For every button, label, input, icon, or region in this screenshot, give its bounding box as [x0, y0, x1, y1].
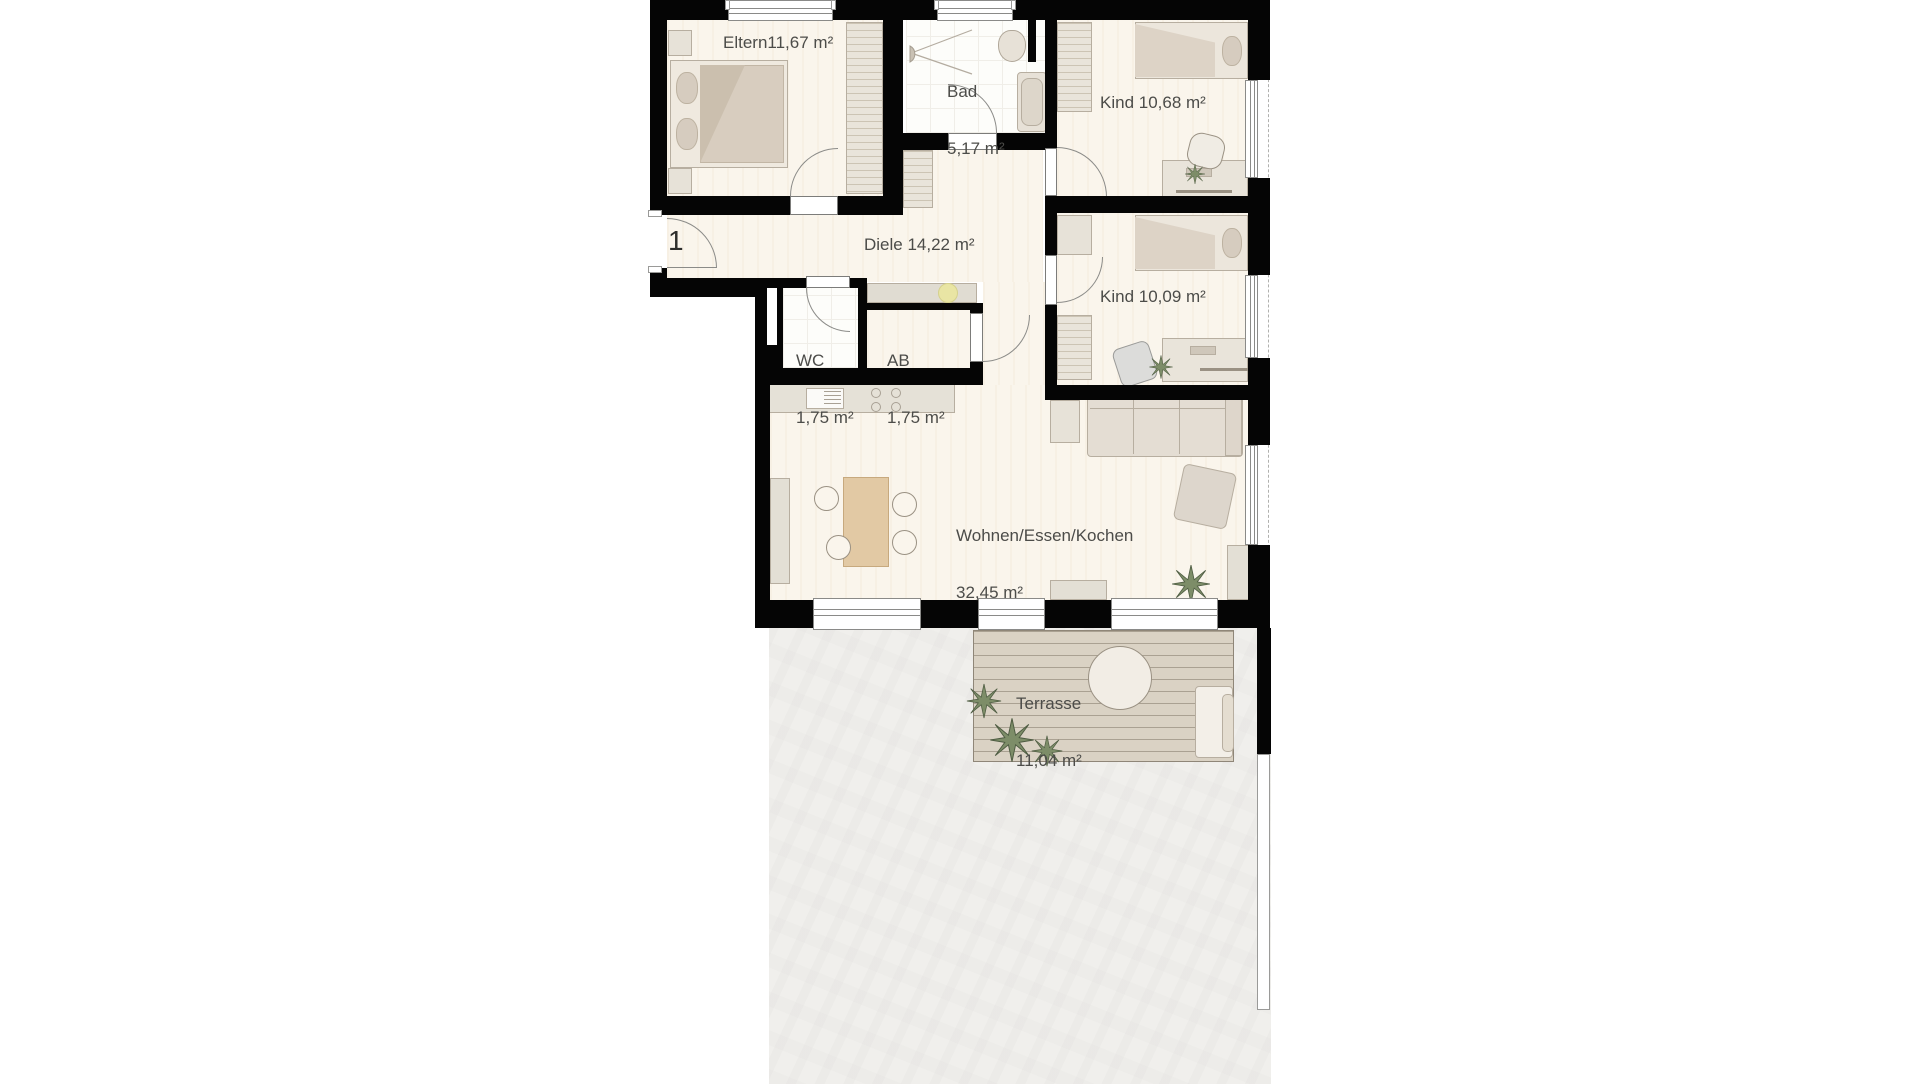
- window-jamb: [934, 0, 939, 10]
- window-kind-top: [1245, 80, 1258, 178]
- boundary-dashed-line: [1268, 24, 1269, 628]
- window-wohnen-bottom-left: [813, 598, 921, 630]
- plant-icon: [1184, 163, 1206, 185]
- wall-wohnen-left: [755, 297, 770, 628]
- room-area: 1,75 m²: [887, 408, 945, 427]
- desk-icon: [1162, 338, 1248, 382]
- wall-wc-block-bottom: [755, 368, 983, 385]
- sofa-seat-divider: [1179, 396, 1180, 454]
- monitor-icon: [1176, 190, 1232, 193]
- wall-terrace-right: [1257, 628, 1271, 754]
- window-kind-mid: [1245, 275, 1258, 358]
- room-name: WC: [796, 351, 854, 370]
- room-label-bad: Bad 5,17 m²: [947, 44, 1005, 196]
- unit-number-label: 1: [668, 226, 684, 256]
- room-name: Terrasse: [1016, 694, 1082, 713]
- wall-ab-top: [867, 303, 977, 310]
- wall-right: [1248, 358, 1270, 445]
- nightstand-icon: [668, 168, 692, 194]
- window-jamb: [1011, 0, 1016, 10]
- wardrobe-icon: [846, 22, 883, 194]
- pillow-icon: [1222, 36, 1242, 66]
- wall-right: [1248, 178, 1270, 275]
- floor-plan: Eltern11,67 m² Bad 5,17 m² Kind 10,68 m²…: [0, 0, 1920, 1084]
- room-label-wc: WC 1,75 m²: [796, 313, 854, 465]
- wall-kind-divider: [1057, 196, 1270, 213]
- dining-table-icon: [843, 477, 889, 567]
- dining-chair-icon: [892, 492, 917, 517]
- door-leaf-ab: [970, 313, 983, 362]
- door-leaf-kind-mid: [1045, 255, 1057, 305]
- sofa-armrest: [1225, 395, 1242, 456]
- plant-icon: [965, 682, 1003, 720]
- keyboard-icon: [1190, 346, 1216, 355]
- window-jamb: [831, 0, 836, 10]
- wall-segment: [1028, 20, 1036, 62]
- bowl-icon: [938, 283, 958, 303]
- room-label-kind-mid: Kind 10,09 m²: [1100, 287, 1206, 306]
- door-jamb: [648, 210, 662, 217]
- window-wohnen-right: [1245, 445, 1258, 545]
- window-jamb: [725, 0, 730, 10]
- wall-right: [1248, 0, 1270, 80]
- pillow-icon: [676, 118, 698, 150]
- room-name: Bad: [947, 82, 1005, 101]
- door-leaf-kind-top: [1045, 148, 1057, 196]
- door-leaf-eltern: [790, 196, 838, 215]
- garden-railing: [1257, 754, 1270, 1010]
- room-label-kind-top: Kind 10,68 m²: [1100, 93, 1206, 112]
- pillow-icon: [1222, 228, 1242, 258]
- dining-chair-icon: [826, 535, 851, 560]
- room-label-ab: AB 1,75 m²: [887, 313, 945, 465]
- door-gap: [650, 215, 667, 268]
- room-label-eltern: Eltern11,67 m²: [723, 33, 833, 52]
- wardrobe-icon: [903, 150, 933, 208]
- room-name: Wohnen/Essen/Kochen: [956, 526, 1133, 545]
- nightstand-icon: [668, 30, 692, 56]
- shelf-icon: [1057, 215, 1092, 255]
- dining-chair-icon: [814, 486, 839, 511]
- sideboard-icon: [867, 283, 977, 303]
- door-leaf-wc: [806, 276, 850, 288]
- bathtub-inner: [1021, 78, 1043, 126]
- stove-burner-icon: [871, 388, 881, 398]
- dining-chair-icon: [892, 530, 917, 555]
- stove-burner-icon: [871, 402, 881, 412]
- room-label-terrasse: Terrasse 11,04 m²: [1016, 656, 1082, 808]
- pillow-icon: [676, 72, 698, 104]
- lounger-cushion: [1222, 694, 1234, 752]
- wall-eltern-bottom: [650, 196, 903, 215]
- room-area: 5,17 m²: [947, 139, 1005, 158]
- sofa-seat-divider: [1133, 396, 1134, 454]
- room-area: 1,75 m²: [796, 408, 854, 427]
- wall-kind-bottom: [1045, 385, 1270, 400]
- wall-kind-left: [1045, 0, 1057, 400]
- shelf-icon: [1050, 400, 1080, 443]
- plant-icon: [1148, 354, 1174, 380]
- shaft: [767, 288, 777, 345]
- sideboard-icon: [770, 478, 790, 584]
- wardrobe-icon: [1057, 22, 1092, 112]
- door-jamb: [648, 266, 662, 273]
- room-area: 11,04 m²: [1016, 751, 1082, 770]
- room-name: AB: [887, 351, 945, 370]
- wardrobe-icon: [1057, 315, 1092, 380]
- cabinet-icon: [1227, 545, 1249, 600]
- room-label-diele: Diele 14,22 m²: [864, 235, 975, 254]
- wall-wc-ab-divider: [858, 288, 867, 368]
- room-area: 32,45 m²: [956, 583, 1133, 602]
- monitor-icon: [1200, 368, 1248, 371]
- wall-eltern-right: [883, 0, 903, 196]
- window-bad: [937, 0, 1013, 21]
- terrace-table: [1088, 646, 1152, 710]
- room-label-wohnen: Wohnen/Essen/Kochen 32,45 m²: [956, 488, 1133, 640]
- window-eltern: [728, 0, 833, 21]
